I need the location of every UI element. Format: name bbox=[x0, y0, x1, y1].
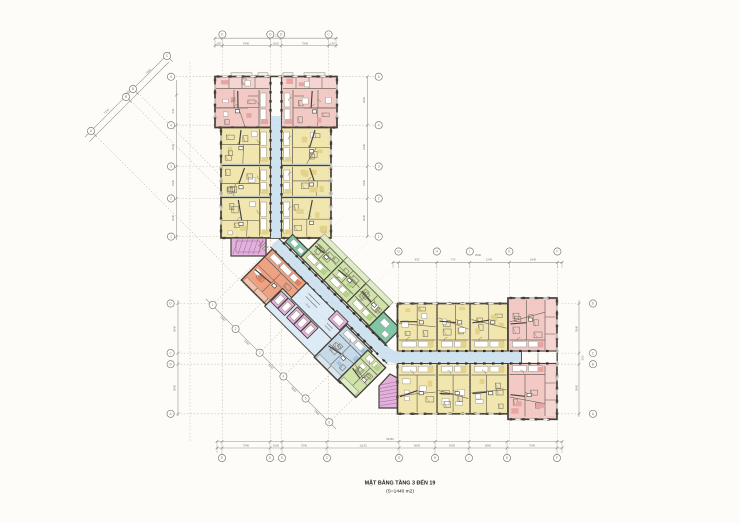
svg-text:3040: 3040 bbox=[171, 214, 175, 221]
svg-text:1240: 1240 bbox=[486, 258, 493, 262]
svg-text:3940: 3940 bbox=[575, 384, 579, 391]
svg-text:G: G bbox=[397, 250, 400, 254]
svg-text:1: 1 bbox=[212, 303, 214, 307]
svg-text:7940: 7940 bbox=[243, 444, 250, 448]
svg-text:130: 130 bbox=[216, 41, 221, 45]
svg-text:960: 960 bbox=[581, 355, 585, 360]
svg-text:130: 130 bbox=[330, 41, 335, 45]
svg-text:G: G bbox=[398, 456, 401, 460]
svg-text:F: F bbox=[556, 250, 558, 254]
svg-text:1640: 1640 bbox=[530, 258, 537, 262]
svg-text:7940: 7940 bbox=[302, 41, 309, 45]
svg-text:5: 5 bbox=[378, 75, 380, 79]
svg-text:2: 2 bbox=[235, 327, 237, 331]
svg-text:11130: 11130 bbox=[359, 444, 367, 448]
svg-text:930: 930 bbox=[415, 258, 420, 262]
svg-text:1: 1 bbox=[378, 235, 380, 239]
svg-text:1600: 1600 bbox=[273, 41, 280, 45]
svg-text:4940: 4940 bbox=[362, 96, 366, 103]
svg-text:3: 3 bbox=[378, 165, 380, 169]
svg-text:3040: 3040 bbox=[362, 214, 366, 221]
svg-text:770: 770 bbox=[451, 258, 456, 262]
svg-text:4: 4 bbox=[282, 375, 284, 379]
svg-text:F: F bbox=[556, 456, 558, 460]
svg-text:5300: 5300 bbox=[449, 444, 456, 448]
svg-text:I: I bbox=[469, 456, 470, 460]
svg-text:2: 2 bbox=[378, 197, 380, 201]
svg-text:7040: 7040 bbox=[301, 444, 308, 448]
svg-text:I: I bbox=[469, 250, 470, 254]
svg-text:33460: 33460 bbox=[386, 437, 394, 441]
svg-text:1600: 1600 bbox=[273, 444, 280, 448]
svg-text:5: 5 bbox=[170, 75, 172, 79]
svg-text:(S=1440 m2): (S=1440 m2) bbox=[386, 489, 414, 495]
svg-text:2340: 2340 bbox=[171, 179, 175, 186]
svg-text:3: 3 bbox=[170, 165, 172, 169]
svg-text:3940: 3940 bbox=[575, 325, 579, 332]
svg-text:640: 640 bbox=[171, 108, 175, 113]
svg-text:2: 2 bbox=[170, 197, 172, 201]
svg-text:2690: 2690 bbox=[475, 253, 482, 257]
svg-text:7940: 7940 bbox=[243, 41, 250, 45]
svg-text:3340: 3340 bbox=[171, 143, 175, 150]
svg-text:2340: 2340 bbox=[362, 179, 366, 186]
svg-text:3940: 3940 bbox=[173, 325, 177, 332]
svg-text:3940: 3940 bbox=[173, 384, 177, 391]
svg-text:1: 1 bbox=[170, 235, 172, 239]
svg-text:5860: 5860 bbox=[485, 444, 492, 448]
svg-text:4: 4 bbox=[378, 123, 380, 127]
svg-text:4: 4 bbox=[170, 123, 172, 127]
svg-text:5600: 5600 bbox=[414, 444, 421, 448]
svg-text:3340: 3340 bbox=[362, 143, 366, 150]
svg-text:MẶT BẰNG TẦNG 3 ĐẾN 19: MẶT BẰNG TẦNG 3 ĐẾN 19 bbox=[365, 479, 436, 487]
svg-text:3: 3 bbox=[259, 351, 261, 355]
svg-text:7640: 7640 bbox=[529, 444, 536, 448]
svg-text:5: 5 bbox=[305, 397, 307, 401]
svg-text:6: 6 bbox=[328, 420, 330, 424]
